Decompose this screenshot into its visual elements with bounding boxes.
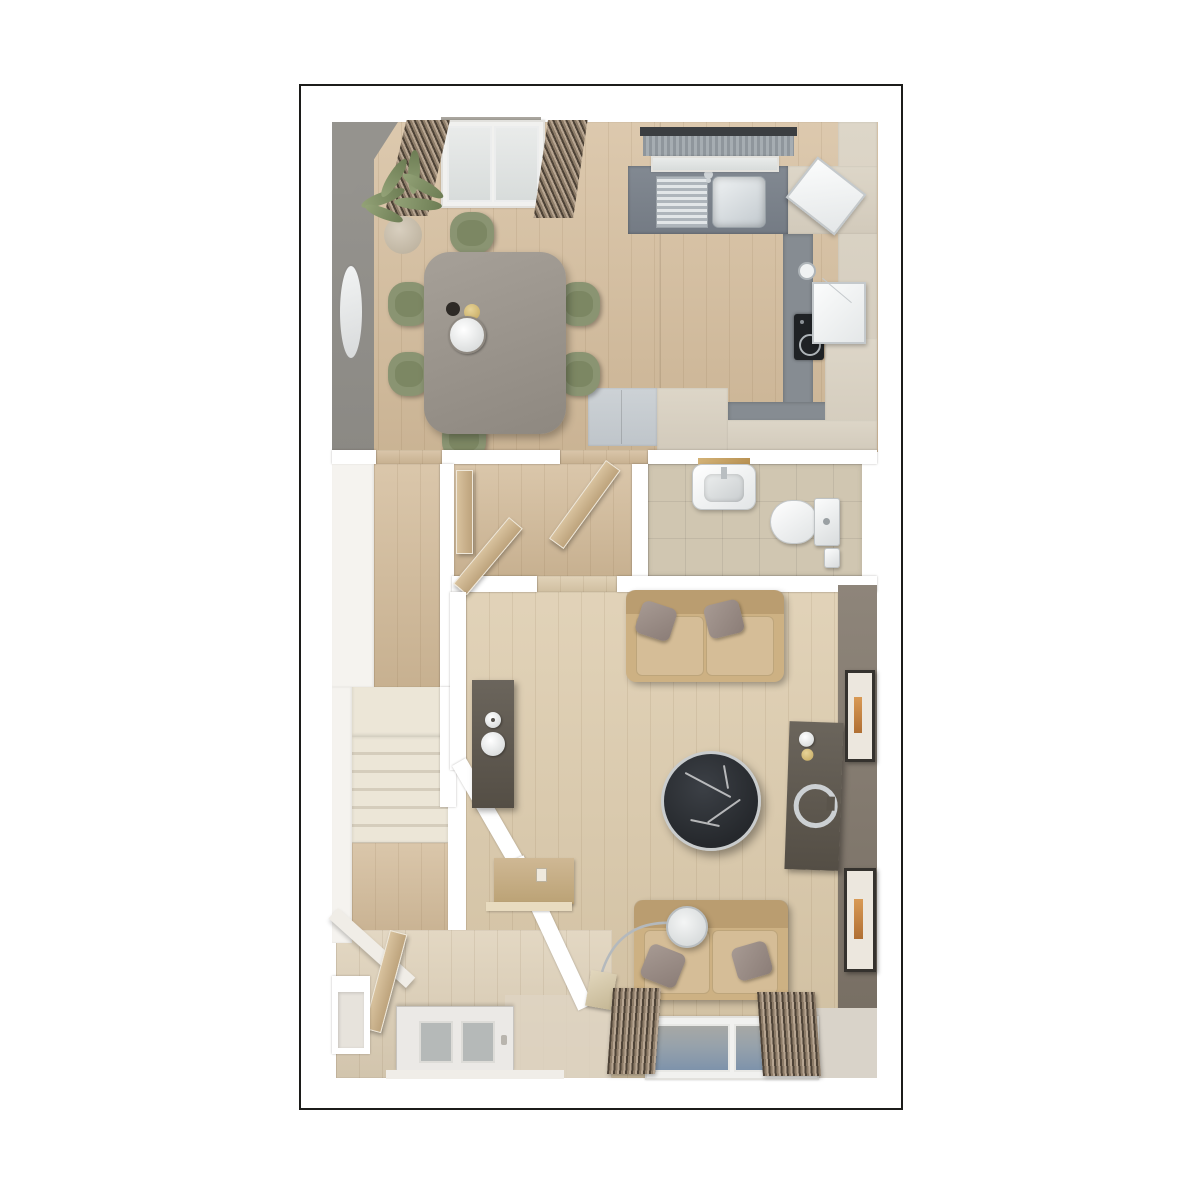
- media-decor-gold: [801, 749, 813, 761]
- fridge-unit-divider: [621, 390, 622, 444]
- front-door: [396, 1006, 514, 1072]
- wall-h1-mid: [442, 450, 560, 464]
- sink-drainer: [656, 176, 708, 228]
- wc-basin: [692, 464, 756, 510]
- wc-paper-holder: [824, 548, 840, 568]
- kitchen-blind-header: [640, 127, 797, 136]
- front-door-glass-right: [461, 1021, 495, 1063]
- front-door-threshold: [386, 1070, 564, 1079]
- sink-basin: [712, 176, 766, 228]
- table-cup: [446, 302, 460, 316]
- console-dot: [491, 718, 495, 722]
- entry-niche-inner: [338, 992, 364, 1048]
- kitchen-window-sill: [651, 156, 779, 172]
- wc-flush-button-icon: [823, 518, 830, 525]
- corridor-floor: [374, 464, 440, 687]
- wall-h1-right: [648, 450, 877, 464]
- kitchen-roller-blind: [643, 136, 794, 156]
- living-door-gap-floor: [537, 576, 617, 592]
- living-west-wall: [450, 592, 466, 770]
- table-plate: [448, 316, 486, 354]
- corridor-left-wall: [332, 464, 374, 687]
- sofa-top: [626, 590, 784, 682]
- desk-item: [536, 868, 547, 882]
- wall-h1-left: [332, 450, 376, 464]
- arc-lamp-shade: [666, 906, 708, 948]
- dining-chair-top: [450, 212, 494, 254]
- wc-basin-tap-icon: [721, 467, 727, 479]
- potted-plant: [358, 164, 442, 264]
- stairs-left-wall: [332, 687, 352, 943]
- media-console-unit: [784, 721, 843, 871]
- staircase-treads: [352, 737, 448, 843]
- wc-toilet-bowl: [770, 500, 818, 544]
- corridor-gap-floor: [376, 450, 442, 464]
- dining-table: [424, 252, 566, 434]
- wall-art-upper: [845, 670, 875, 762]
- front-door-glass-left: [419, 1021, 453, 1063]
- wall-wc-left: [632, 464, 648, 576]
- understairs-floor: [352, 843, 448, 943]
- media-decor-white: [799, 731, 815, 747]
- console-bowl-large: [481, 732, 505, 756]
- living-bottom-right-wall: [813, 1008, 877, 1078]
- plant-pot: [384, 216, 422, 254]
- oval-wall-mirror: [338, 264, 364, 360]
- living-curtain-right: [757, 992, 821, 1076]
- stairs-landing: [352, 687, 448, 737]
- living-curtain-left: [607, 988, 661, 1074]
- media-ring-gap: [827, 796, 835, 810]
- kettle-icon: [798, 262, 816, 280]
- hob-control-dot-icon: [800, 320, 804, 324]
- living-window-glass-left: [653, 1024, 730, 1072]
- coffee-table-marble: [661, 751, 761, 851]
- wc-toilet-cistern: [814, 498, 840, 546]
- hall-console-unit: [472, 680, 514, 808]
- floor-plan-canvas: [0, 0, 1200, 1200]
- kitchen-island-counter: [657, 388, 728, 452]
- front-door-handle-icon: [501, 1035, 507, 1045]
- french-door-pane-left: [447, 126, 492, 202]
- wall-art-lower: [844, 868, 876, 972]
- open-door-corridor: [456, 470, 473, 554]
- fridge-unit-top: [588, 388, 657, 446]
- french-door: [441, 120, 545, 208]
- french-door-pane-right: [494, 126, 539, 202]
